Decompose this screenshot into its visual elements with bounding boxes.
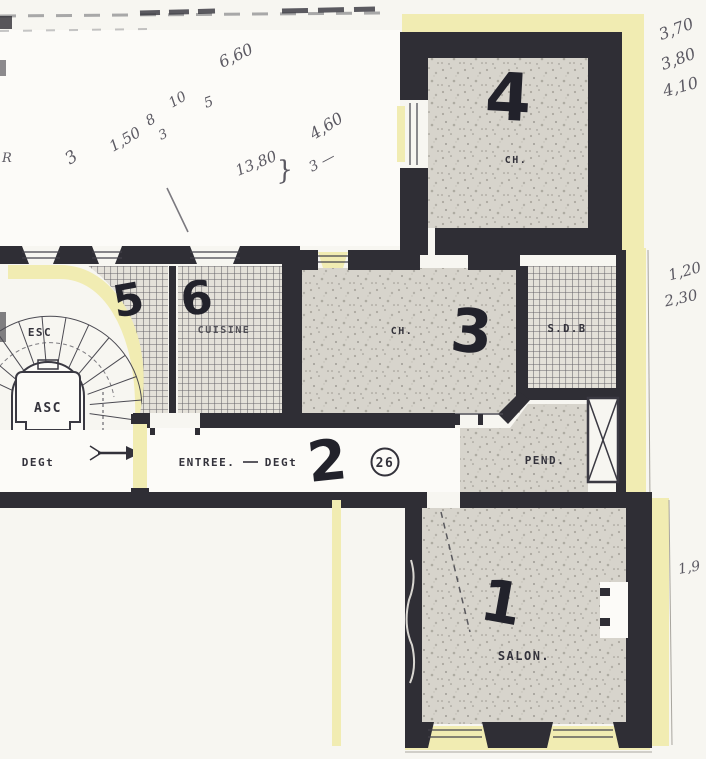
room-number-4: 4 <box>483 58 533 137</box>
kitchen-room: 6 CUISINE <box>178 266 282 413</box>
salon-label: SALON. <box>498 649 550 663</box>
bedroom3: CH. 3 <box>295 250 520 413</box>
bedroom4: CH. 4 <box>397 14 644 255</box>
room-number-3: 3 <box>448 296 495 369</box>
floor-plan-svg: 3 1,50 8 10 3 5 6,60 13,80 } 4,60 3 — R <box>0 0 706 759</box>
courtyard-yellow-strip <box>332 500 341 746</box>
elevator-label: ASC <box>34 401 62 416</box>
wall-wc-kitchen-divider <box>169 266 176 413</box>
stairs-label: ESC <box>28 326 52 339</box>
door-number: 26 <box>376 456 395 471</box>
landing-label: DEGt <box>22 456 55 469</box>
room-number-6: 6 <box>178 270 215 327</box>
elevator: ASC <box>12 360 84 430</box>
hall-label-entree: ENTREE. <box>179 456 236 469</box>
edge-artifact <box>0 60 6 76</box>
kitchen-label: CUISINE <box>198 325 251 336</box>
duct-symbol <box>588 398 618 482</box>
bedroom3-label: CH. <box>391 326 414 337</box>
bathroom: S.D.B <box>516 266 620 400</box>
bedroom4-label: CH. <box>505 155 528 166</box>
chimney-block <box>282 250 303 422</box>
east-wall-middle <box>616 248 650 502</box>
room-number-2: 2 <box>304 427 350 496</box>
bathroom-label: S.D.B <box>547 323 586 335</box>
edge-artifact <box>0 16 12 29</box>
entrance-threshold <box>133 422 147 498</box>
scanned-floor-plan: 3 1,50 8 10 3 5 6,60 13,80 } 4,60 3 — R <box>0 0 706 759</box>
closet-label: PEND. <box>525 454 566 467</box>
hall-label-degt: DEGt <box>265 456 298 469</box>
left-edge-letter: R <box>1 151 12 166</box>
